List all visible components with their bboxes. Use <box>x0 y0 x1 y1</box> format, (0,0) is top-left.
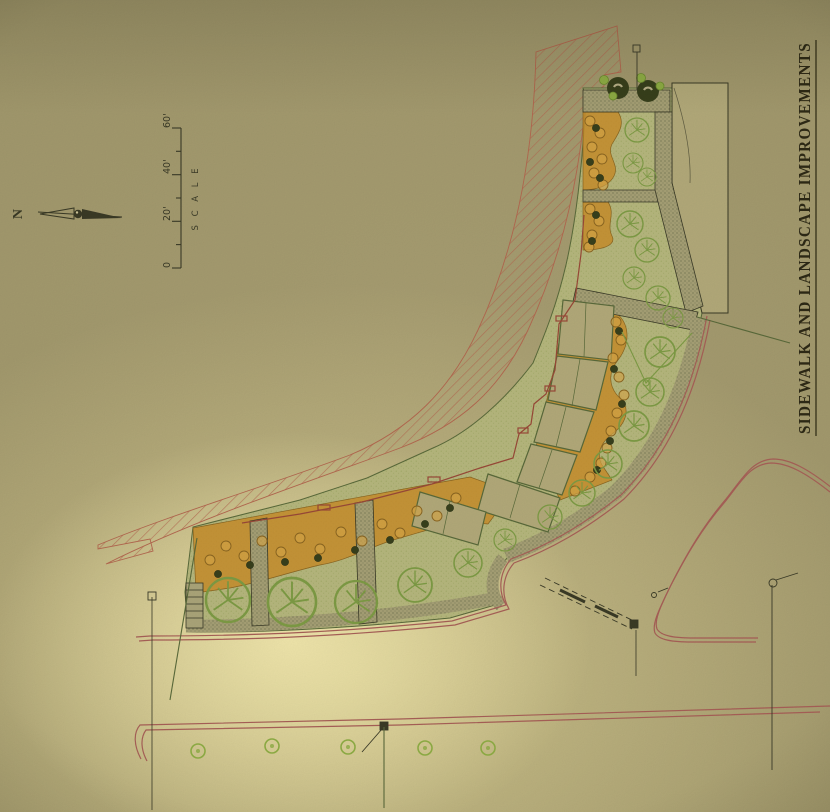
photographed-plan-sheet: N 60' 40' 20' 0 S C A L E <box>0 0 830 812</box>
photo-grain-overlay <box>0 0 830 812</box>
site-plan-drawing: N 60' 40' 20' 0 S C A L E <box>0 0 830 812</box>
